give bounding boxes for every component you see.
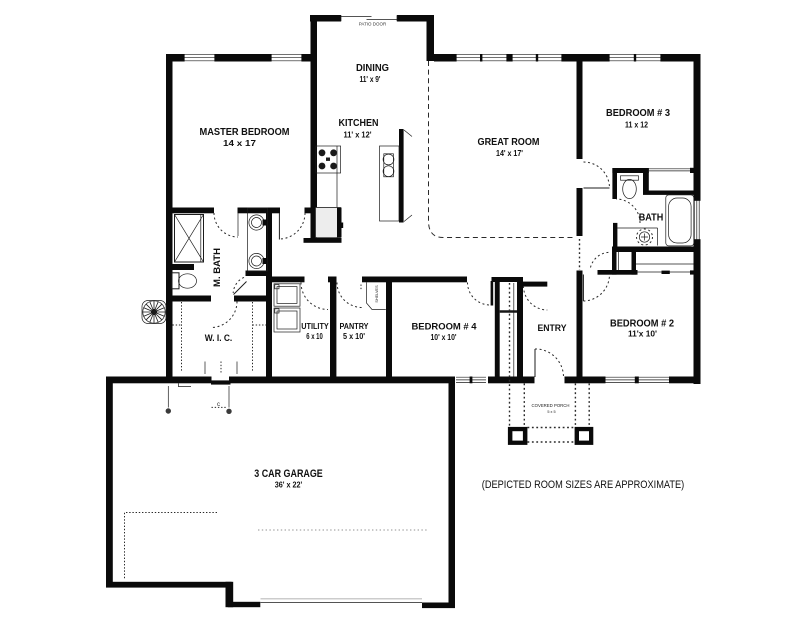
svg-text:6 x 10: 6 x 10 <box>306 332 323 341</box>
svg-text:c: c <box>217 402 220 408</box>
svg-text:11'x 10': 11'x 10' <box>628 330 657 339</box>
svg-text:COVERED PORCH: COVERED PORCH <box>532 403 570 408</box>
svg-text:10' x 10': 10' x 10' <box>431 333 457 342</box>
svg-text:UTILITY: UTILITY <box>301 321 329 331</box>
svg-text:PATIO DOOR: PATIO DOOR <box>359 21 387 26</box>
svg-text:36' x 22': 36' x 22' <box>275 480 303 490</box>
svg-text:DINING: DINING <box>356 63 389 74</box>
svg-text:BEDROOM # 2: BEDROOM # 2 <box>610 319 674 330</box>
svg-text:KITCHEN: KITCHEN <box>339 118 379 129</box>
svg-text:5 x 5: 5 x 5 <box>547 410 555 414</box>
svg-text:5 x 10': 5 x 10' <box>343 332 365 341</box>
svg-text:3 CAR GARAGE: 3 CAR GARAGE <box>254 468 323 480</box>
svg-text:11 x 12: 11 x 12 <box>625 120 648 130</box>
svg-text:BEDROOM # 3: BEDROOM # 3 <box>606 108 670 119</box>
svg-text:W. I. C.: W. I. C. <box>205 333 233 343</box>
svg-text:BATH: BATH <box>639 213 664 224</box>
svg-text:ENTRY: ENTRY <box>538 323 567 333</box>
svg-text:11' x 9': 11' x 9' <box>360 74 381 84</box>
svg-text:MASTER BEDROOM: MASTER BEDROOM <box>200 127 290 138</box>
svg-text:GREAT ROOM: GREAT ROOM <box>478 137 540 148</box>
svg-text:SHELVES: SHELVES <box>375 285 379 303</box>
svg-text:M. BATH: M. BATH <box>212 248 222 287</box>
svg-text:14 x 17: 14 x 17 <box>223 138 256 148</box>
svg-text:(DEPICTED ROOM SIZES ARE APPRO: (DEPICTED ROOM SIZES ARE APPROXIMATE) <box>482 479 685 491</box>
svg-text:PANTRY: PANTRY <box>340 321 369 331</box>
svg-text:BEDROOM # 4: BEDROOM # 4 <box>412 322 478 332</box>
svg-text:11' x 12': 11' x 12' <box>344 130 372 140</box>
svg-text:14' x 17': 14' x 17' <box>496 148 523 158</box>
